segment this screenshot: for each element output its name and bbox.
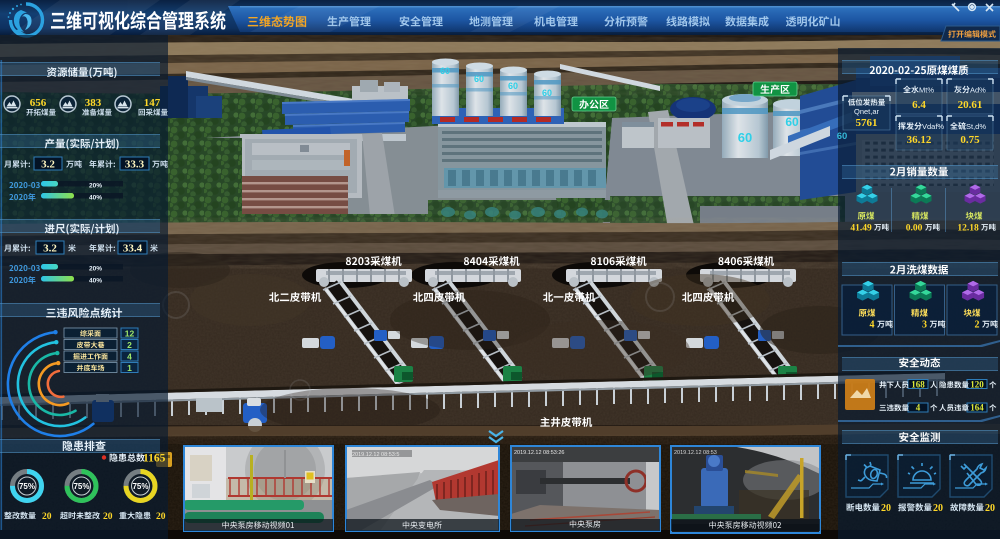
svg-text:168: 168 [911, 380, 925, 390]
svg-text:120: 120 [970, 380, 984, 390]
svg-text:656: 656 [30, 97, 47, 109]
svg-text:60: 60 [837, 131, 848, 142]
svg-text:20: 20 [933, 503, 943, 514]
svg-text:20%: 20% [89, 266, 102, 273]
svg-text:75%: 75% [132, 482, 148, 491]
svg-text:12: 12 [125, 329, 135, 339]
svg-text:5761: 5761 [856, 117, 878, 129]
svg-text:Vdaf%: Vdaf% [922, 122, 944, 131]
svg-text:Mt%: Mt% [919, 86, 934, 95]
svg-text:36.12: 36.12 [907, 134, 932, 146]
svg-text:St,d%: St,d% [966, 122, 986, 131]
svg-text:41.49: 41.49 [850, 224, 872, 234]
svg-text:75%: 75% [19, 482, 35, 491]
svg-text:33.3: 33.3 [125, 159, 145, 171]
svg-text:3.2: 3.2 [43, 243, 57, 255]
svg-text:1: 1 [127, 363, 132, 373]
svg-text:20: 20 [42, 512, 52, 522]
svg-text:33.4: 33.4 [123, 243, 143, 255]
svg-text:2: 2 [975, 320, 980, 331]
svg-text:Ad%: Ad% [970, 86, 986, 95]
svg-text:Qnet,ar: Qnet,ar [854, 107, 880, 116]
svg-text:164: 164 [970, 403, 984, 413]
svg-text:3: 3 [922, 320, 927, 331]
svg-text:6.4: 6.4 [912, 99, 926, 111]
svg-text:40%: 40% [89, 195, 102, 202]
svg-text:4: 4 [127, 352, 132, 362]
svg-text:60: 60 [738, 130, 752, 145]
svg-text:60: 60 [508, 81, 518, 91]
svg-text:3.2: 3.2 [41, 159, 55, 171]
svg-text:75%: 75% [73, 482, 89, 491]
svg-text:4: 4 [916, 403, 921, 413]
svg-text:60: 60 [785, 115, 799, 129]
svg-text:4: 4 [870, 320, 875, 331]
svg-text:60: 60 [440, 66, 450, 76]
svg-text:20.61: 20.61 [958, 99, 983, 111]
svg-text:60: 60 [474, 74, 484, 84]
svg-text:60: 60 [542, 88, 552, 98]
svg-text:147: 147 [144, 97, 161, 109]
svg-text:1165: 1165 [143, 453, 166, 465]
svg-text:20: 20 [103, 512, 113, 522]
svg-text:40%: 40% [89, 278, 102, 285]
svg-text:2: 2 [127, 340, 132, 350]
svg-text:20: 20 [156, 512, 166, 522]
svg-text:12.18: 12.18 [957, 224, 979, 234]
svg-text:0.75: 0.75 [960, 134, 980, 146]
svg-text:20%: 20% [89, 183, 102, 190]
svg-text:0.00: 0.00 [906, 224, 923, 234]
svg-text:383: 383 [85, 97, 102, 109]
svg-text:20: 20 [881, 503, 891, 514]
svg-text:20: 20 [985, 503, 995, 514]
